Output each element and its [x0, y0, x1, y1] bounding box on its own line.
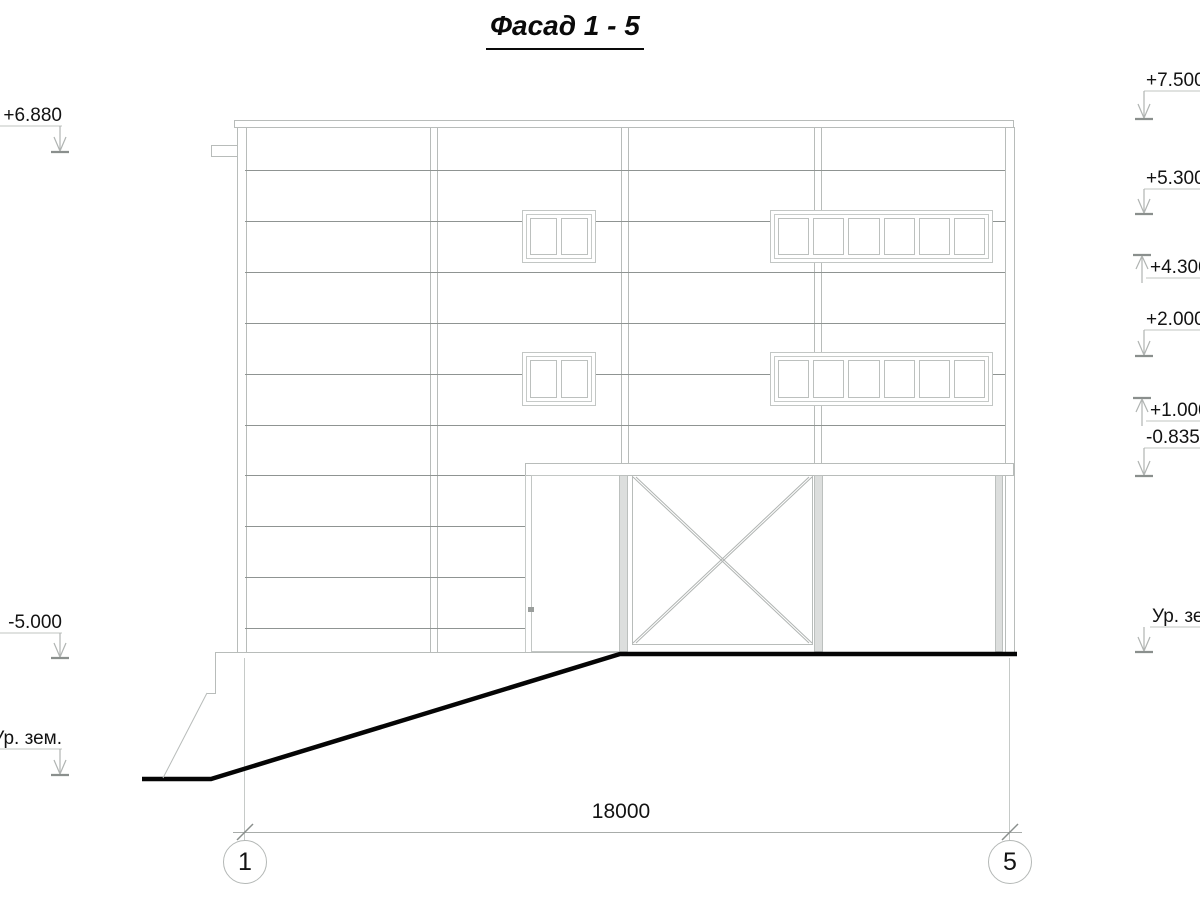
window-pane — [778, 360, 809, 398]
window-pane — [954, 360, 985, 398]
level-mark-plus7500: +7.500 — [1146, 70, 1200, 92]
window-pane — [884, 218, 915, 255]
axis-number: 5 — [1003, 848, 1017, 877]
level-marker-line — [1136, 399, 1142, 412]
wall-right — [1005, 127, 1015, 652]
dimension-value: 18000 — [555, 800, 687, 824]
level-mark-minus0835: -0.835 — [1146, 427, 1200, 449]
door-panel — [531, 475, 621, 652]
level-mark-plus1000: +1.000 — [1150, 400, 1200, 422]
level-markers — [0, 91, 1200, 775]
level-mark-plus5300: +5.300 — [1146, 168, 1200, 190]
wall-left — [237, 127, 247, 652]
drawing-canvas: 18000 1 5 Фасад 1 - 5 +6.880-5.000Ур. зе… — [0, 0, 1200, 900]
level-mark-plus2000: +2.000 — [1146, 309, 1200, 331]
level-marker-line — [54, 137, 60, 151]
foundation-edge — [215, 652, 216, 693]
window-pane — [530, 218, 557, 255]
siding-line-lower — [245, 628, 525, 629]
window-frame — [774, 356, 989, 402]
level-marker-line — [1144, 637, 1150, 651]
lower-section-edge — [525, 475, 526, 652]
level-marker-line — [1138, 104, 1144, 118]
level-marker-line — [1144, 104, 1150, 118]
drawing-title: Фасад 1 - 5 — [440, 10, 690, 50]
level-marker-line — [1138, 341, 1144, 355]
window-frame — [526, 214, 592, 259]
braced-gate — [632, 475, 813, 645]
window-pane — [813, 218, 844, 255]
linework-overlay — [0, 0, 1200, 900]
foundation-step — [207, 693, 216, 694]
window-2pane-upper — [522, 210, 596, 263]
ground-line — [142, 654, 1017, 779]
level-mark-ground-right: Ур. зем. — [1152, 606, 1200, 628]
axis-bubble-1: 1 — [223, 840, 267, 884]
dimension-line — [233, 832, 1022, 833]
level-marker-line — [1142, 399, 1148, 412]
window-pane — [813, 360, 844, 398]
level-marker-line — [1142, 256, 1148, 269]
level-marker-line — [60, 643, 66, 657]
window-pane — [561, 218, 588, 255]
window-strip-6pane-upper — [770, 210, 993, 263]
level-marker-line — [1138, 199, 1144, 213]
axis-bubble-5: 5 — [988, 840, 1032, 884]
window-strip-6pane-lower — [770, 352, 993, 406]
level-mark-plus4300: +4.300 — [1150, 257, 1200, 279]
roof-protrusion — [211, 145, 238, 157]
roof-band — [234, 120, 1014, 128]
window-pane — [848, 360, 879, 398]
window-pane — [848, 218, 879, 255]
level-mark-minus5000: -5.000 — [0, 612, 62, 634]
level-marker-line — [1144, 199, 1150, 213]
siding-line-lower — [245, 526, 525, 527]
siding-line — [245, 323, 1005, 324]
window-pane — [954, 218, 985, 255]
drawing-title-text: Фасад 1 - 5 — [486, 10, 644, 50]
level-marker-line — [1144, 341, 1150, 355]
pier-column — [995, 475, 1003, 652]
foundation-top-line — [215, 652, 1014, 653]
level-marker-line — [1144, 461, 1150, 475]
level-mark-ground-left: Ур. зем. — [0, 728, 62, 750]
window-pane — [919, 218, 950, 255]
window-2pane-lower — [522, 352, 596, 406]
window-frame — [526, 356, 592, 402]
window-frame — [774, 214, 989, 259]
level-mark-plus6880: +6.880 — [0, 105, 62, 127]
foundation-slope-line — [163, 693, 207, 778]
siding-line-lower — [245, 475, 525, 476]
extension-line-axis-5 — [1009, 658, 1010, 842]
level-marker-line — [54, 760, 60, 774]
window-pane — [778, 218, 809, 255]
level-marker-line — [54, 643, 60, 657]
level-marker-line — [1136, 256, 1142, 269]
pier-column — [814, 475, 823, 652]
axis-number: 1 — [238, 848, 252, 877]
level-marker-line — [1138, 637, 1144, 651]
siding-line-lower — [245, 577, 525, 578]
level-marker-line — [60, 137, 66, 151]
level-marker-line — [1138, 461, 1144, 475]
siding-line — [245, 272, 1005, 273]
column-line-3 — [621, 127, 629, 463]
column-line-4 — [814, 127, 822, 463]
extension-line-axis-1 — [244, 658, 245, 843]
window-pane — [884, 360, 915, 398]
window-pane — [530, 360, 557, 398]
pier-column — [619, 475, 628, 652]
door-handle — [528, 607, 534, 612]
window-pane — [561, 360, 588, 398]
level-marker-line — [60, 760, 66, 774]
window-pane — [919, 360, 950, 398]
siding-line — [245, 170, 1005, 171]
siding-line — [245, 425, 1005, 426]
column-line-2 — [430, 127, 438, 652]
